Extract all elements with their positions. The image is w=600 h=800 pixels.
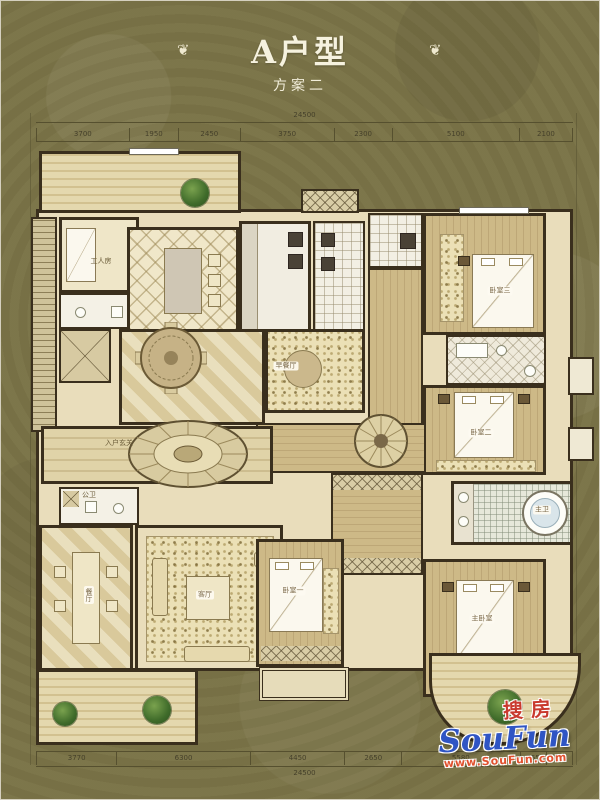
rug-bedroom2 (436, 460, 536, 472)
room-bath2 (446, 335, 546, 385)
pillow (490, 584, 504, 592)
label-bedroom2: 卧室二 (469, 429, 494, 438)
label-entry-hall: 入户玄关 (105, 438, 133, 448)
dimension-segment: 3700 (36, 128, 130, 141)
dimension-segment: 2450 (179, 128, 241, 141)
floor-plan: 工人房 入户玄关 公卫 早餐厅 餐厅 客厅 卧室一 卧室二 卧室三 主卧室 主卫 (31, 151, 576, 761)
nightstand (518, 582, 530, 592)
dining-chair (106, 600, 118, 612)
closet-corridor (331, 473, 423, 575)
dimension-segment: 2300 (335, 128, 393, 141)
page-title: A户型 (1, 27, 599, 73)
toilet-bath2 (524, 365, 536, 377)
label-public-bath: 公卫 (82, 490, 96, 500)
plant-balcony (143, 696, 171, 724)
pillow (490, 396, 504, 404)
label-master-bath: 主卫 (533, 506, 551, 515)
room-breakfast (265, 329, 365, 413)
pillow (509, 258, 523, 266)
nightstand (518, 394, 530, 404)
label-living: 客厅 (196, 591, 214, 600)
floorplan-page: A户型 ❦ ❦ 方案二 24500 3700195024503750230051… (0, 0, 600, 800)
hall-middle (368, 268, 423, 433)
room-laundry (368, 213, 423, 268)
floral-ornament-right-icon: ❦ (429, 41, 442, 59)
staircase (31, 217, 57, 432)
room-pantry (313, 221, 365, 333)
balcony-bottom-left (36, 669, 198, 745)
dining-chair (54, 600, 66, 612)
sink-public-bath (85, 501, 97, 513)
round-floor-medallion (353, 413, 409, 469)
nightstand (442, 582, 454, 592)
dimension-top-segments: 3700195024503750230051002100 (36, 128, 573, 142)
bed-maid-room (66, 228, 96, 282)
label-maid-room: 工人房 (91, 256, 112, 266)
oven (288, 254, 303, 269)
bed-bedroom2 (454, 392, 514, 458)
pillow (463, 584, 477, 592)
toilet-maid-bath (75, 307, 86, 318)
kitchen-counter (242, 224, 258, 330)
sink-maid-bath (111, 306, 123, 318)
stool (208, 274, 221, 287)
plant-balcony (53, 702, 77, 726)
window-bedroom3 (459, 207, 529, 214)
pillow (300, 562, 314, 570)
nightstand (458, 256, 470, 266)
washer (400, 233, 416, 249)
label-bedroom3: 卧室三 (488, 287, 513, 296)
bay-window-right (568, 357, 594, 395)
label-breakfast: 早餐厅 (274, 362, 299, 371)
oval-floor-medallion (126, 418, 250, 490)
page-subtitle: 方案二 (1, 75, 599, 95)
label-dining: 餐厅 (84, 586, 94, 604)
sink-bath2 (496, 345, 507, 356)
room-chinese-kitchen (239, 221, 311, 333)
dining-chair (106, 566, 118, 578)
wardrobe (333, 558, 421, 573)
sofa-side (152, 558, 168, 616)
room-west-kitchen (127, 227, 239, 333)
room-bedroom3 (423, 213, 546, 335)
toilet-public-bath (113, 503, 124, 514)
bay-window-bottom (259, 667, 349, 701)
pillow (481, 258, 495, 266)
terrace-top-left (39, 151, 241, 213)
label-bedroom1: 卧室一 (281, 587, 306, 596)
stool (208, 294, 221, 307)
kitchen-island (164, 248, 202, 314)
pillow (275, 562, 289, 570)
wardrobe (333, 475, 421, 490)
round-dining-table (135, 322, 207, 394)
dimension-segment: 3750 (241, 128, 335, 141)
dimension-top-total: 24500 (36, 109, 573, 123)
sink-master-bath (458, 492, 469, 503)
appliance (321, 257, 335, 271)
bay-window-right (568, 427, 594, 461)
duct-shaft (301, 189, 359, 213)
sink-master-bath (458, 516, 469, 527)
rug-bedroom1 (323, 568, 339, 634)
room-master-bath (451, 481, 573, 545)
pillow (462, 396, 476, 404)
appliance (321, 233, 335, 247)
dimension-segment: 5100 (393, 128, 520, 141)
nightstand (438, 394, 450, 404)
elevator (59, 329, 111, 383)
label-master-bedroom: 主卧室 (470, 615, 495, 624)
window-terrace-top (129, 148, 179, 155)
rug-bedroom3 (440, 234, 464, 322)
dimension-segment: 1950 (130, 128, 179, 141)
floral-ornament-left-icon: ❦ (177, 41, 190, 59)
room-public-bath (59, 487, 139, 525)
stool (208, 254, 221, 267)
dimension-segment: 2100 (520, 128, 573, 141)
shower (63, 491, 79, 507)
dimension-bottom-total: 24500 (36, 766, 573, 780)
bathtub-bath2 (456, 343, 488, 358)
wardrobe (261, 646, 341, 661)
dining-chair (54, 566, 66, 578)
soufun-watermark: 搜房 SouFun www.SouFun.com (419, 691, 589, 772)
stove (288, 232, 303, 247)
sofa-main (184, 646, 250, 662)
plant-terrace (181, 179, 209, 207)
room-bedroom1 (256, 539, 344, 667)
